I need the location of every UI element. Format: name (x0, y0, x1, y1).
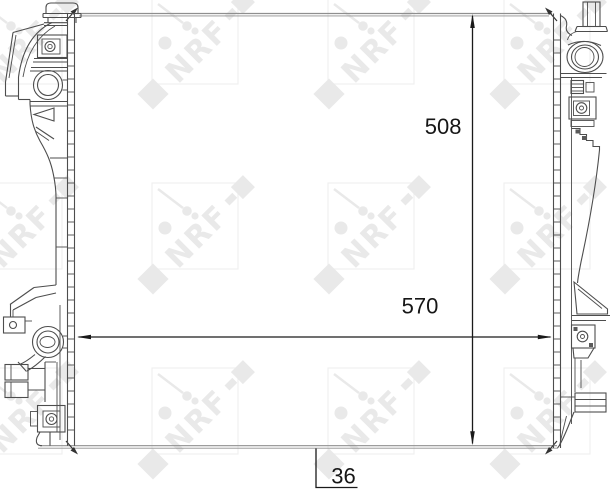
right-tank-shoulder (561, 16, 578, 41)
radiator-drawing: 508 570 36 (0, 0, 614, 492)
width-dimension-label: 570 (402, 294, 439, 319)
right-upper-bracket (569, 97, 596, 127)
corner-tick-top-right (545, 8, 557, 22)
left-tank (4, 3, 82, 446)
core-outline (38, 8, 558, 455)
radiator-diagram: NRFNRFNRFNRFNRFNRFNRFNRFNRFNRFNRFNRF (0, 0, 614, 492)
right-hose-port (567, 41, 603, 72)
dimension-height: 508 (425, 14, 475, 445)
lower-bracket-block (4, 317, 33, 333)
lower-chute (10, 285, 56, 317)
filler-neck (43, 3, 81, 23)
left-tank-ribs (68, 40, 75, 430)
dimension-width: 570 (77, 294, 552, 340)
side-tab (561, 393, 607, 412)
right-tank-ribs (554, 40, 561, 430)
left-tank-rail (68, 14, 75, 446)
upper-mounting-bracket (38, 35, 68, 58)
gusset-bracket (572, 282, 610, 321)
right-tank (554, 2, 611, 448)
right-lower-bracket (572, 325, 596, 392)
depth-dimension-label: 36 (331, 464, 355, 489)
upper-hose-port (34, 71, 68, 100)
mounting-pin (575, 2, 608, 32)
right-tank-bands (561, 74, 607, 78)
left-tank-profile (30, 100, 56, 286)
dimension-depth: 36 (316, 449, 358, 489)
right-tank-profile (572, 129, 600, 284)
vent-block (571, 81, 594, 94)
connector-blocks (5, 362, 57, 432)
left-tank-foot (36, 432, 50, 446)
height-dimension-label: 508 (425, 114, 462, 139)
